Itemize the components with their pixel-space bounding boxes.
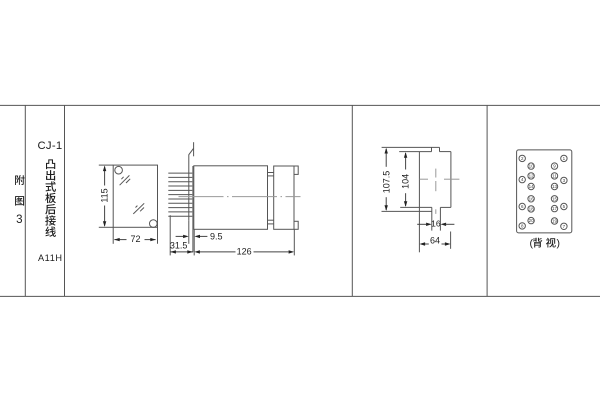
- svg-text:10: 10: [529, 164, 535, 169]
- svg-text:64: 64: [430, 236, 440, 246]
- svg-text:126: 126: [237, 246, 252, 256]
- svg-text:17: 17: [552, 206, 558, 211]
- svg-text:107.5: 107.5: [381, 171, 391, 194]
- svg-text:3: 3: [16, 214, 22, 226]
- svg-text:14: 14: [529, 184, 535, 189]
- svg-text:16: 16: [431, 218, 441, 228]
- svg-text:115: 115: [100, 188, 110, 202]
- svg-text:A11H: A11H: [38, 253, 63, 263]
- svg-text:11: 11: [552, 174, 557, 179]
- svg-text:13: 13: [552, 184, 558, 189]
- svg-text:(: (: [530, 237, 534, 249]
- svg-text:15: 15: [552, 196, 558, 201]
- svg-text:18: 18: [529, 207, 535, 212]
- svg-text:31.5: 31.5: [170, 241, 188, 251]
- svg-text:104: 104: [401, 174, 411, 189]
- svg-text:CJ-1: CJ-1: [37, 140, 62, 152]
- svg-text:20: 20: [529, 218, 535, 223]
- svg-text:16: 16: [529, 196, 535, 201]
- svg-text:72: 72: [130, 234, 140, 244]
- svg-text:12: 12: [529, 174, 535, 179]
- svg-text:): ): [557, 237, 561, 249]
- svg-text:9.5: 9.5: [210, 231, 223, 241]
- svg-text:19: 19: [552, 219, 558, 224]
